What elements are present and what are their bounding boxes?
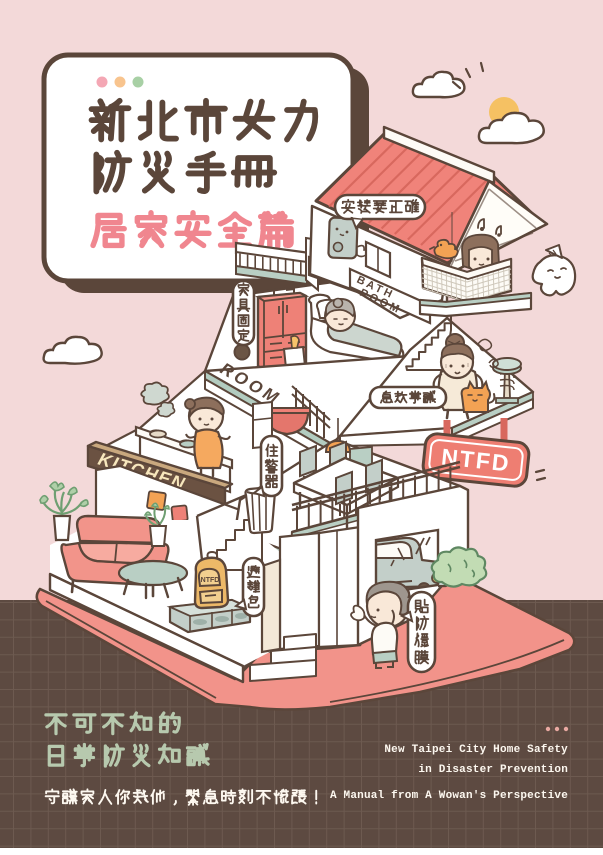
svg-text:A Manual from A Wowan's Perspe: A Manual from A Wowan's Perspective <box>330 790 568 802</box>
svg-text:New Taipei City Home Safety: New Taipei City Home Safety <box>384 744 568 756</box>
svg-text:NTFD: NTFD <box>201 577 220 584</box>
svg-text:in Disaster Prevention: in Disaster Prevention <box>418 764 568 776</box>
